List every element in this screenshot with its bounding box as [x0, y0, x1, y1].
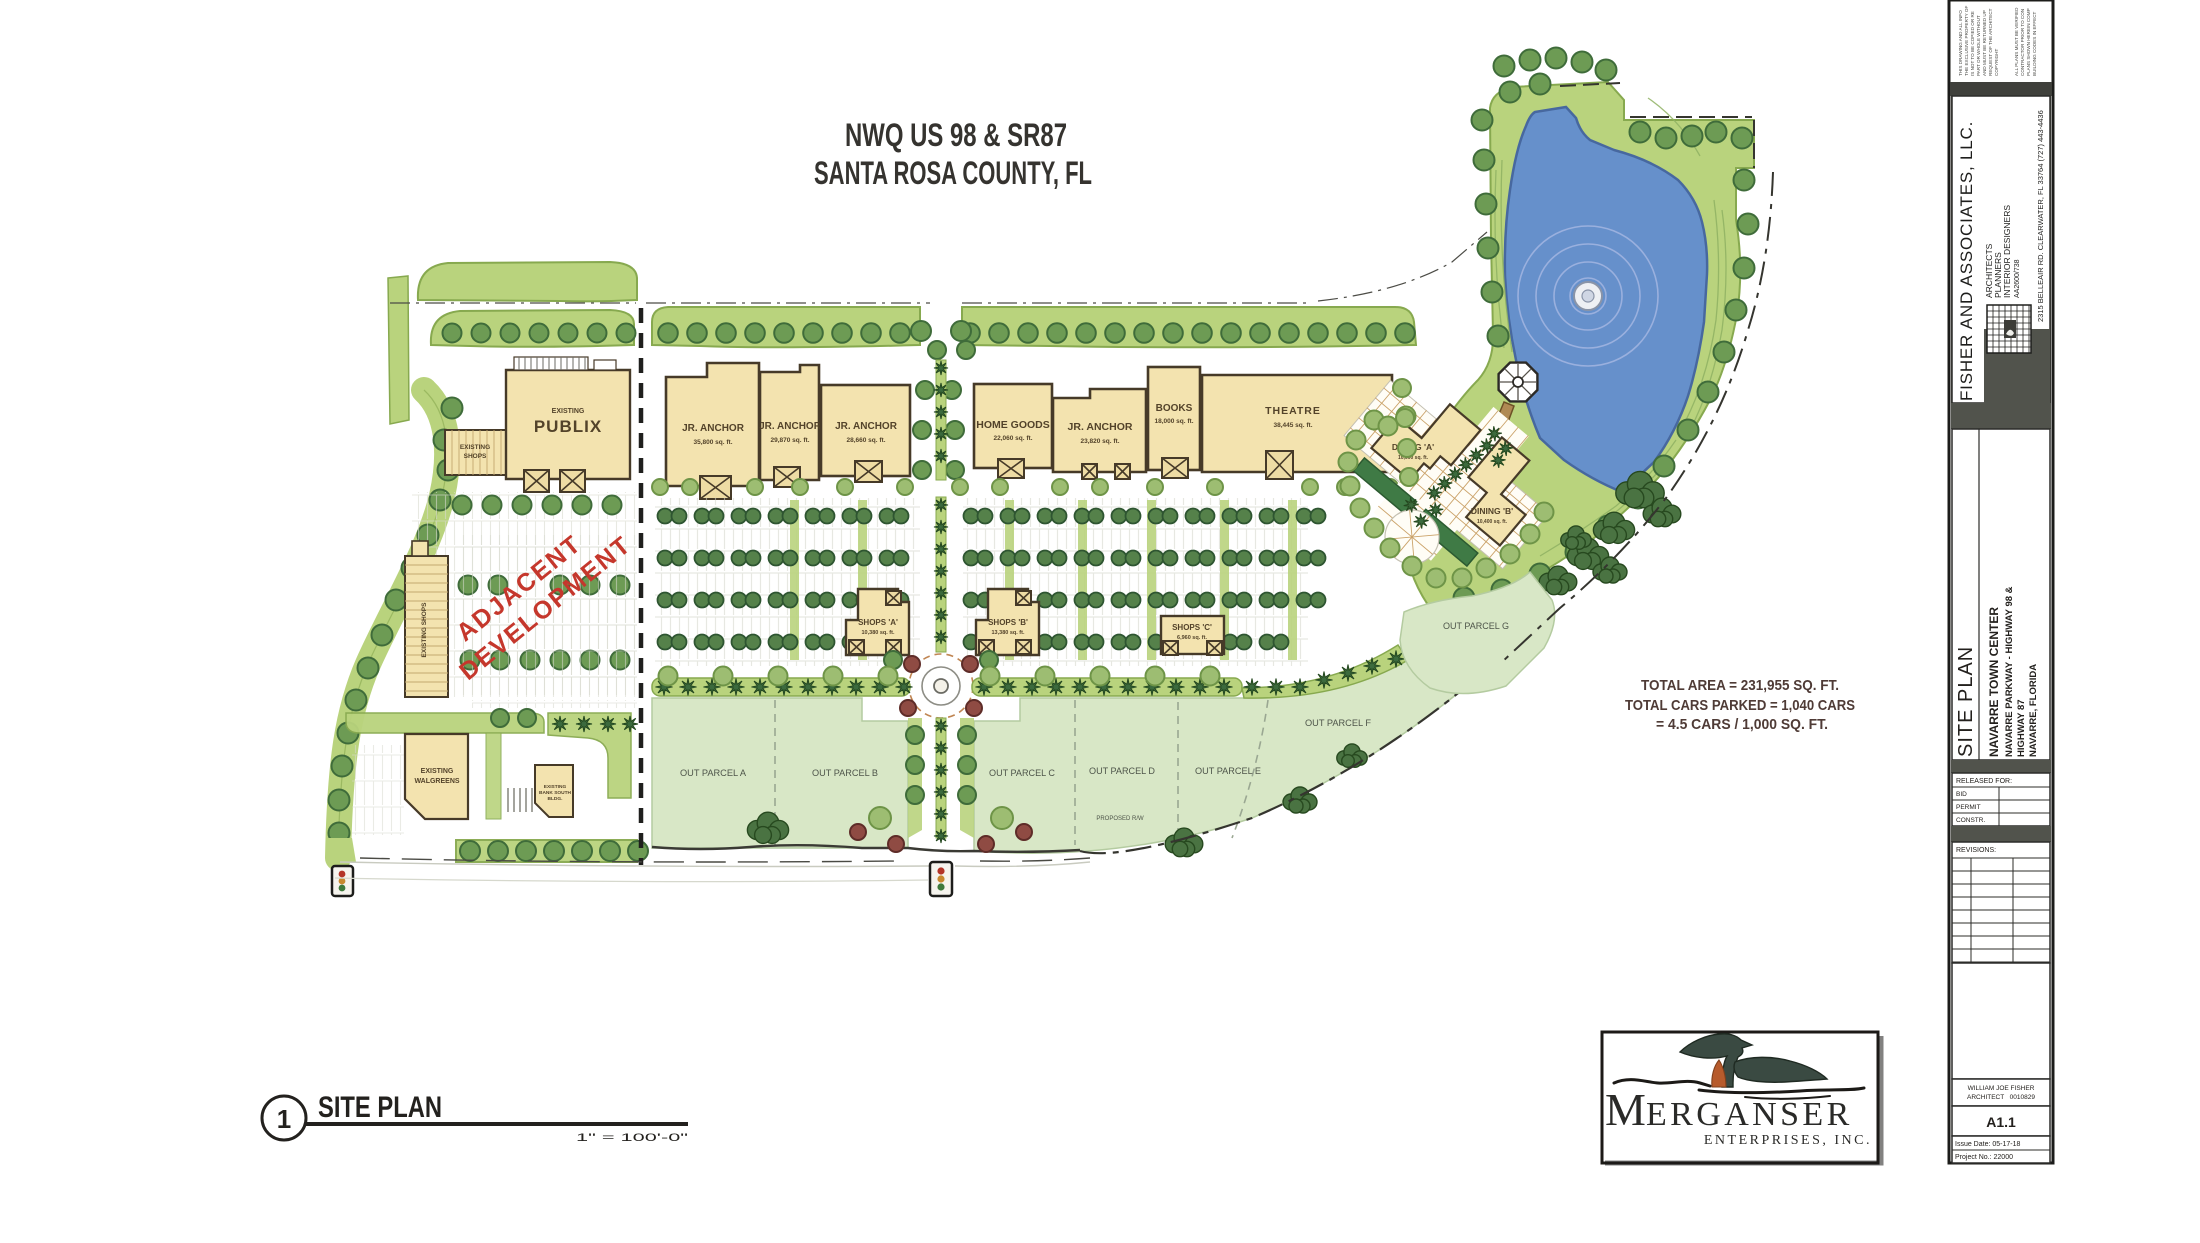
svg-text:6,960 sq. ft.: 6,960 sq. ft. [1177, 635, 1207, 641]
svg-text:BOOKS: BOOKS [1156, 403, 1193, 414]
svg-text:= 4.5 CARS / 1,000 SQ. FT.: = 4.5 CARS / 1,000 SQ. FT. [1656, 716, 1828, 733]
svg-text:OUT PARCEL C: OUT PARCEL C [989, 768, 1055, 779]
svg-text:CONSTR.: CONSTR. [1956, 817, 1985, 824]
svg-text:EXISTING: EXISTING [552, 408, 585, 415]
svg-text:2315 BELLEAIR RD. CLEARWATER,: 2315 BELLEAIR RD. CLEARWATER, FL 33764 (… [2036, 110, 2045, 322]
svg-text:OUT PARCEL D: OUT PARCEL D [1089, 766, 1155, 777]
svg-text:SHOPS 'B': SHOPS 'B' [988, 618, 1028, 627]
svg-text:REVISIONS:: REVISIONS: [1956, 847, 1996, 854]
svg-text:Issue Date: 05-17-18: Issue Date: 05-17-18 [1955, 1141, 2020, 1148]
svg-text:TOTAL CARS PARKED = 1,040 CARS: TOTAL CARS PARKED = 1,040 CARS [1625, 697, 1855, 714]
svg-text:38,445 sq. ft.: 38,445 sq. ft. [1273, 422, 1312, 429]
svg-text:BUILDING CODES IN EFFECT: BUILDING CODES IN EFFECT [2032, 11, 2037, 76]
svg-text:WILLIAM JOE FISHER: WILLIAM JOE FISHER [1968, 1085, 2035, 1092]
svg-text:SHOPS: SHOPS [464, 453, 487, 460]
svg-text:1: 1 [277, 1104, 291, 1134]
svg-text:13,380 sq. ft.: 13,380 sq. ft. [991, 630, 1024, 636]
svg-text:JR. ANCHOR: JR. ANCHOR [682, 423, 745, 434]
svg-text:ALL PLANS MUST BE VERIFIED: ALL PLANS MUST BE VERIFIED [2014, 7, 2019, 76]
svg-text:22,060 sq. ft.: 22,060 sq. ft. [993, 435, 1032, 442]
svg-text:OUT PARCEL G: OUT PARCEL G [1443, 621, 1509, 632]
svg-text:REQUEST OF THE ARCHITECT: REQUEST OF THE ARCHITECT [1988, 8, 1993, 76]
svg-text:A1.1: A1.1 [1986, 1114, 2016, 1130]
svg-text:OUT PARCEL B: OUT PARCEL B [812, 768, 878, 779]
svg-text:23,820 sq. ft.: 23,820 sq. ft. [1080, 438, 1119, 445]
svg-text:SITE PLAN: SITE PLAN [1955, 646, 1977, 757]
svg-text:JR. ANCHOR: JR. ANCHOR [835, 421, 898, 432]
svg-text:NAVARRE PARKWAY - HIGHWAY 98 &: NAVARRE PARKWAY - HIGHWAY 98 & [2004, 586, 2015, 757]
svg-text:SHOPS 'C': SHOPS 'C' [1172, 623, 1212, 632]
svg-text:NWQ US 98 & SR87: NWQ US 98 & SR87 [845, 117, 1067, 153]
svg-text:IS NOT TO BE COPIED OR RE: IS NOT TO BE COPIED OR RE [1970, 11, 1975, 76]
svg-text:35,800 sq. ft.: 35,800 sq. ft. [693, 439, 732, 446]
svg-text:ENTERPRISES, INC.: ENTERPRISES, INC. [1704, 1133, 1872, 1148]
svg-text:BID: BID [1956, 791, 1967, 798]
svg-text:BLDG.: BLDG. [548, 796, 563, 802]
svg-text:JR. ANCHOR: JR. ANCHOR [1068, 421, 1133, 433]
svg-text:OUT PARCEL E: OUT PARCEL E [1195, 766, 1261, 777]
svg-text:AA2600/738: AA2600/738 [2014, 259, 2021, 298]
svg-text:BANK SOUTH: BANK SOUTH [539, 790, 572, 796]
svg-text:10,380 sq. ft.: 10,380 sq. ft. [861, 630, 894, 636]
svg-text:ERGANSER: ERGANSER [1646, 1096, 1853, 1133]
svg-text:SANTA ROSA COUNTY, FL: SANTA ROSA COUNTY, FL [814, 155, 1092, 191]
svg-text:EXISTING: EXISTING [544, 784, 567, 790]
svg-text:THEATRE: THEATRE [1265, 405, 1321, 417]
svg-text:COPYRIGHT: COPYRIGHT [1994, 48, 1999, 76]
svg-text:EXISTING: EXISTING [460, 444, 490, 451]
svg-text:FISHER AND ASSOCIATES, LLC.: FISHER AND ASSOCIATES, LLC. [1957, 121, 1976, 401]
svg-text:NAVARRE TOWN CENTER: NAVARRE TOWN CENTER [1987, 607, 2001, 757]
svg-text:OUT PARCEL F: OUT PARCEL F [1305, 718, 1371, 729]
svg-text:SHOPS 'A': SHOPS 'A' [858, 618, 898, 627]
svg-text:NAVARRE, FLORIDA: NAVARRE, FLORIDA [2028, 664, 2039, 757]
svg-text:PUBLIX: PUBLIX [534, 417, 602, 436]
svg-text:SITE PLAN: SITE PLAN [318, 1091, 442, 1124]
svg-text:DINING 'B': DINING 'B' [1471, 506, 1513, 516]
svg-text:PART OR WHOLE WITHOUT: PART OR WHOLE WITHOUT [1976, 15, 1981, 76]
svg-text:PERMIT: PERMIT [1956, 804, 1981, 811]
svg-text:18,000 sq. ft.: 18,000 sq. ft. [1154, 418, 1193, 425]
svg-text:PROPOSED R/W: PROPOSED R/W [1096, 816, 1144, 822]
svg-text:CONTRACTOR PRIOR TO CON: CONTRACTOR PRIOR TO CON [2020, 9, 2025, 76]
svg-text:TOTAL AREA = 231,955 SQ. FT.: TOTAL AREA = 231,955 SQ. FT. [1641, 677, 1839, 694]
svg-text:Project No.: 22000: Project No.: 22000 [1955, 1154, 2013, 1161]
svg-text:PLANS SHOWN HEREIN COMP: PLANS SHOWN HEREIN COMP [2026, 8, 2031, 76]
svg-text:JR. ANCHOR: JR. ANCHOR [759, 421, 822, 432]
svg-text:INTERIOR DESIGNERS: INTERIOR DESIGNERS [2002, 205, 2012, 298]
svg-text:10,400 sq. ft.: 10,400 sq. ft. [1477, 519, 1508, 525]
svg-text:HOME GOODS: HOME GOODS [976, 419, 1050, 431]
svg-text:THE EXCLUSIVE PROPERTY OF: THE EXCLUSIVE PROPERTY OF [1964, 6, 1969, 76]
svg-text:AND MUST BE RETURNED UP: AND MUST BE RETURNED UP [1982, 10, 1987, 76]
svg-text:WALGREENS: WALGREENS [414, 778, 459, 785]
svg-text:HIGHWAY 87: HIGHWAY 87 [2016, 699, 2027, 757]
svg-text:EXISTING: EXISTING [421, 768, 454, 775]
svg-text:29,870 sq. ft.: 29,870 sq. ft. [770, 437, 809, 444]
svg-text:28,660 sq. ft.: 28,660 sq. ft. [846, 437, 885, 444]
svg-text:THIS DRAWING AND ALL INFO: THIS DRAWING AND ALL INFO [1958, 10, 1963, 76]
svg-text:M: M [1605, 1084, 1646, 1135]
svg-text:RELEASED FOR:: RELEASED FOR: [1956, 778, 2012, 785]
svg-text:OUT PARCEL A: OUT PARCEL A [680, 768, 747, 779]
svg-text:1" = 100'-0": 1" = 100'-0" [576, 1132, 688, 1144]
svg-text:EXISTING SHOPS: EXISTING SHOPS [421, 602, 428, 658]
svg-text:ARCHITECT 0010829: ARCHITECT 0010829 [1967, 1094, 2035, 1101]
